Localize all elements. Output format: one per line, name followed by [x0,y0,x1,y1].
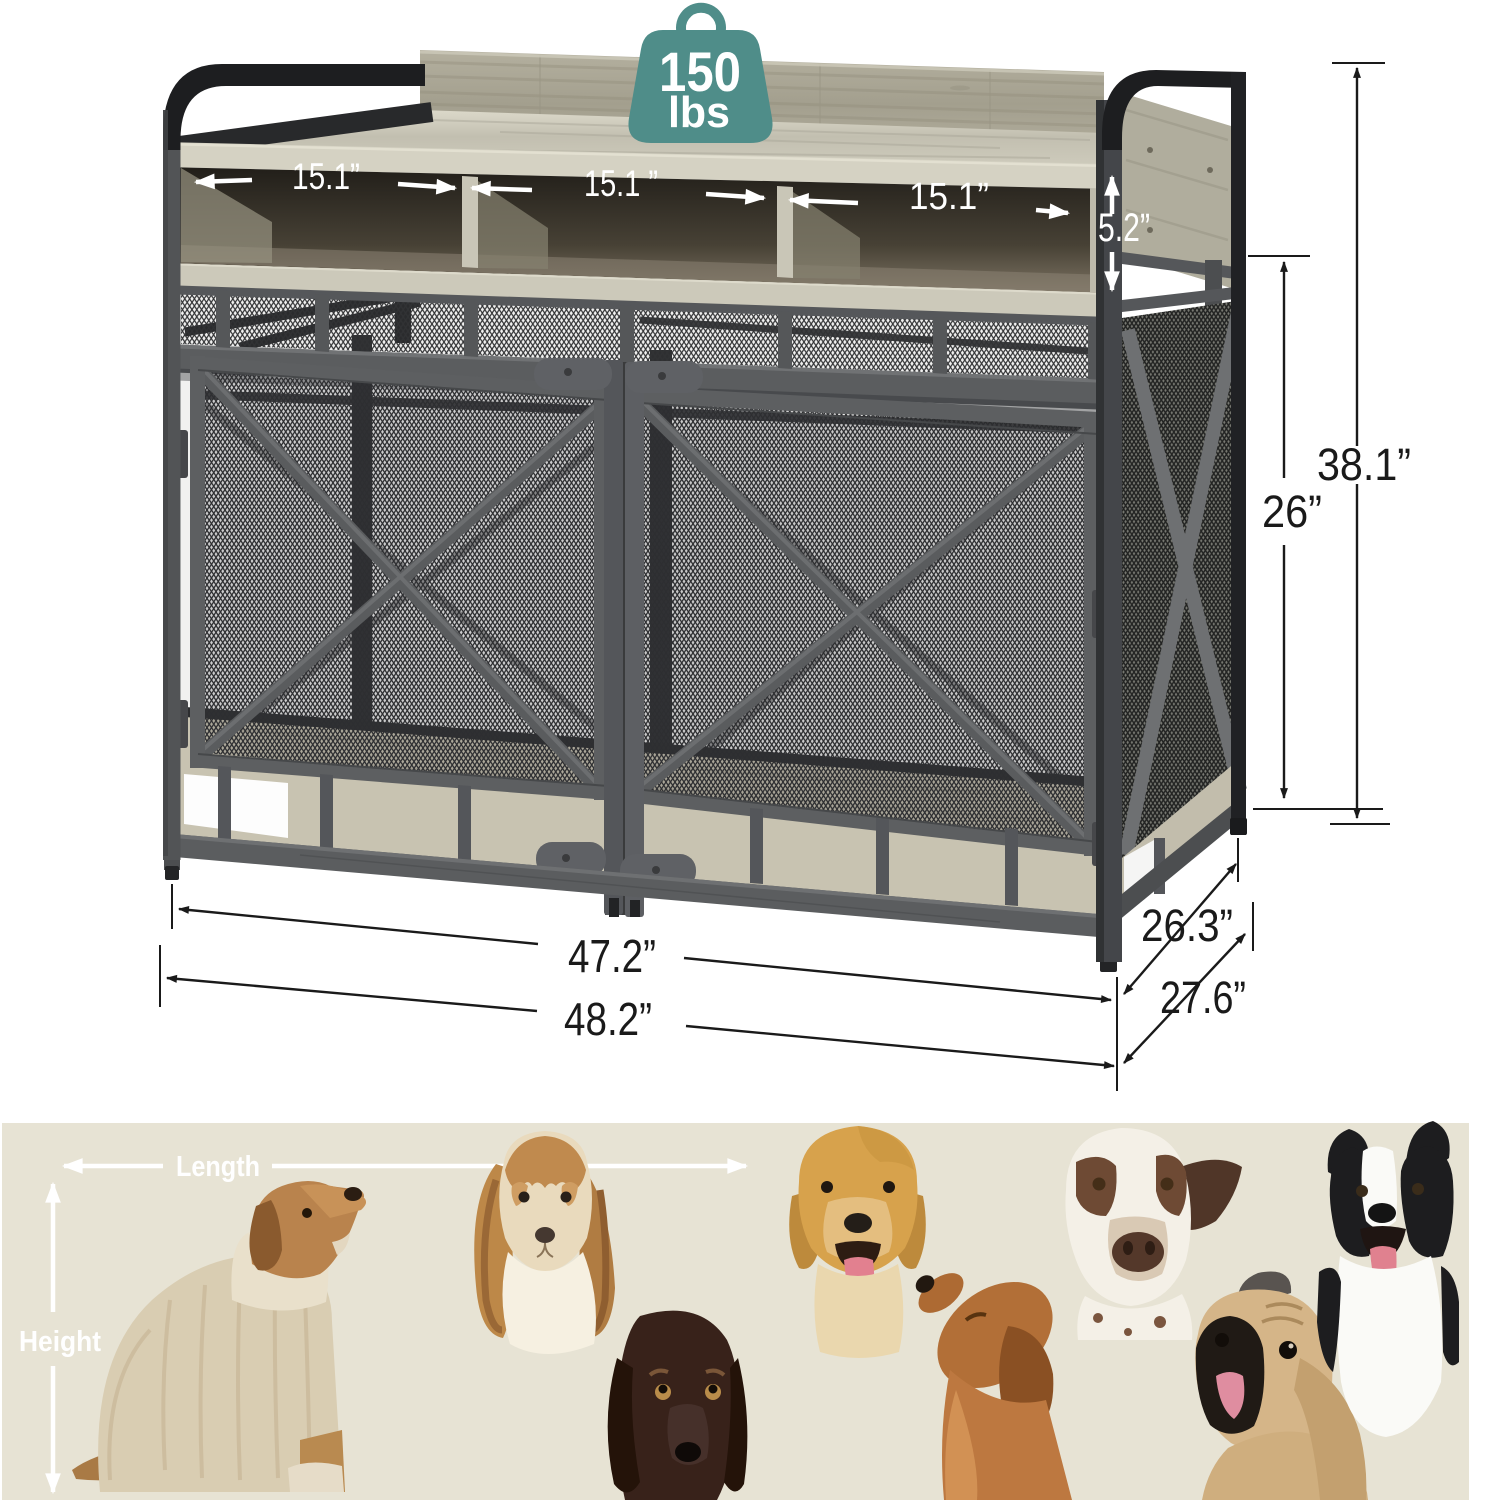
svg-text:15.1”: 15.1” [292,156,360,197]
svg-text:48.2”: 48.2” [564,993,652,1045]
svg-text:26.3”: 26.3” [1141,900,1233,951]
svg-text:Height: Height [19,1326,101,1358]
svg-text:15.1 ”: 15.1 ” [584,163,658,204]
svg-text:47.2”: 47.2” [568,930,656,982]
svg-text:5.2”: 5.2” [1098,206,1150,250]
svg-text:26”: 26” [1262,486,1322,537]
svg-text:15.1”: 15.1” [909,176,989,218]
svg-text:lbs: lbs [668,88,730,137]
svg-text:Length: Length [176,1151,260,1183]
svg-text:38.1”: 38.1” [1317,439,1411,490]
svg-text:27.6”: 27.6” [1160,972,1246,1023]
